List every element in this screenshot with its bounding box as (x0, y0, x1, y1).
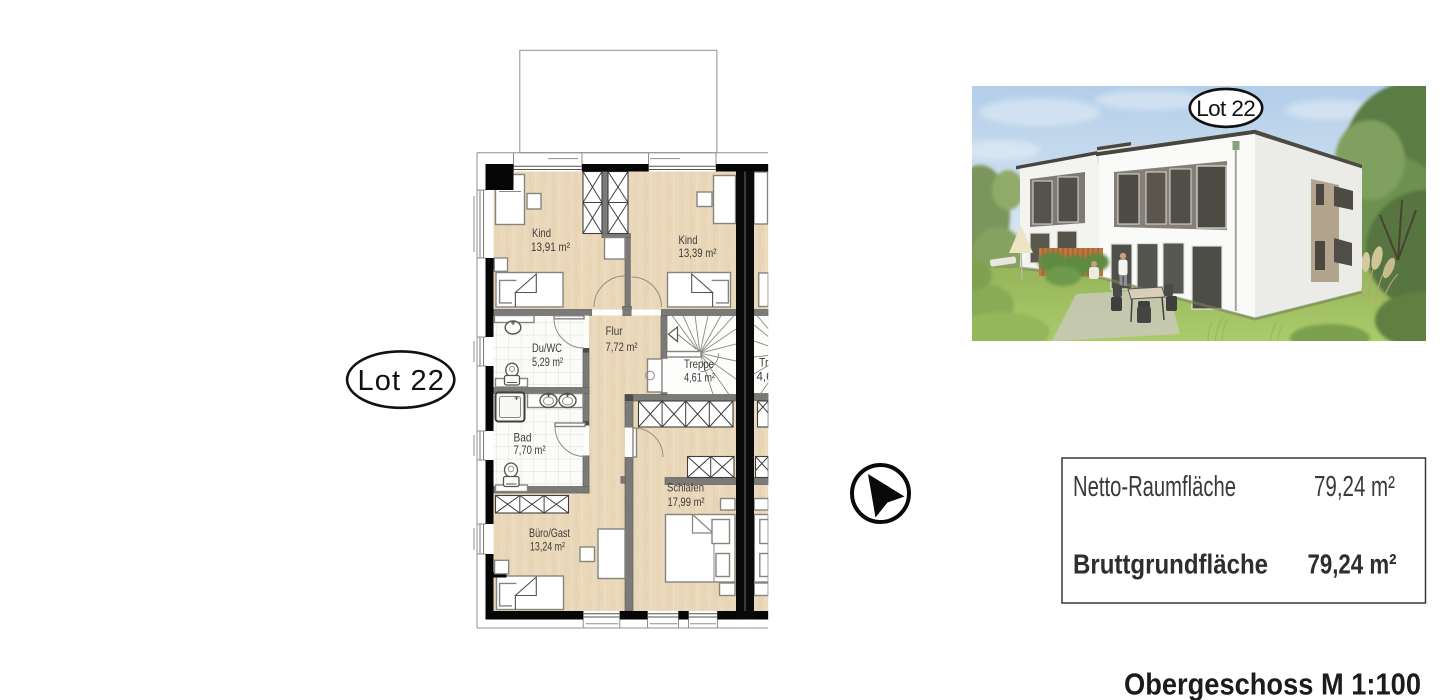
svg-text:Du/WC: Du/WC (532, 341, 562, 355)
svg-text:5,29 m²: 5,29 m² (532, 355, 563, 369)
svg-text:4,61 m²: 4,61 m² (684, 371, 715, 385)
svg-text:Obergeschoss M 1:100: Obergeschoss M 1:100 (1124, 667, 1421, 700)
svg-text:Tr: Tr (759, 356, 769, 370)
svg-text:Schlafen: Schlafen (667, 481, 704, 495)
svg-text:Lot 22: Lot 22 (357, 365, 444, 397)
svg-text:79,24 m²: 79,24 m² (1314, 471, 1395, 503)
svg-text:Netto-Raumfläche: Netto-Raumfläche (1073, 471, 1236, 503)
svg-text:Bruttgrundfläche: Bruttgrundfläche (1073, 549, 1268, 580)
svg-text:Kind: Kind (532, 226, 551, 240)
svg-text:7,72 m²: 7,72 m² (606, 340, 638, 354)
svg-text:Flur: Flur (606, 324, 623, 338)
svg-text:13,24 m²: 13,24 m² (530, 540, 565, 554)
svg-text:Lot 22: Lot 22 (1196, 96, 1256, 121)
svg-text:Büro/Gast: Büro/Gast (529, 526, 570, 540)
svg-text:13,39 m²: 13,39 m² (679, 246, 717, 260)
svg-text:13,91 m²: 13,91 m² (531, 240, 570, 254)
svg-text:Treppe: Treppe (684, 357, 714, 371)
svg-text:7,70 m²: 7,70 m² (514, 443, 546, 457)
svg-text:79,24 m²: 79,24 m² (1308, 549, 1397, 580)
svg-text:17,99 m²: 17,99 m² (668, 495, 705, 509)
svg-text:Kind: Kind (679, 233, 698, 247)
